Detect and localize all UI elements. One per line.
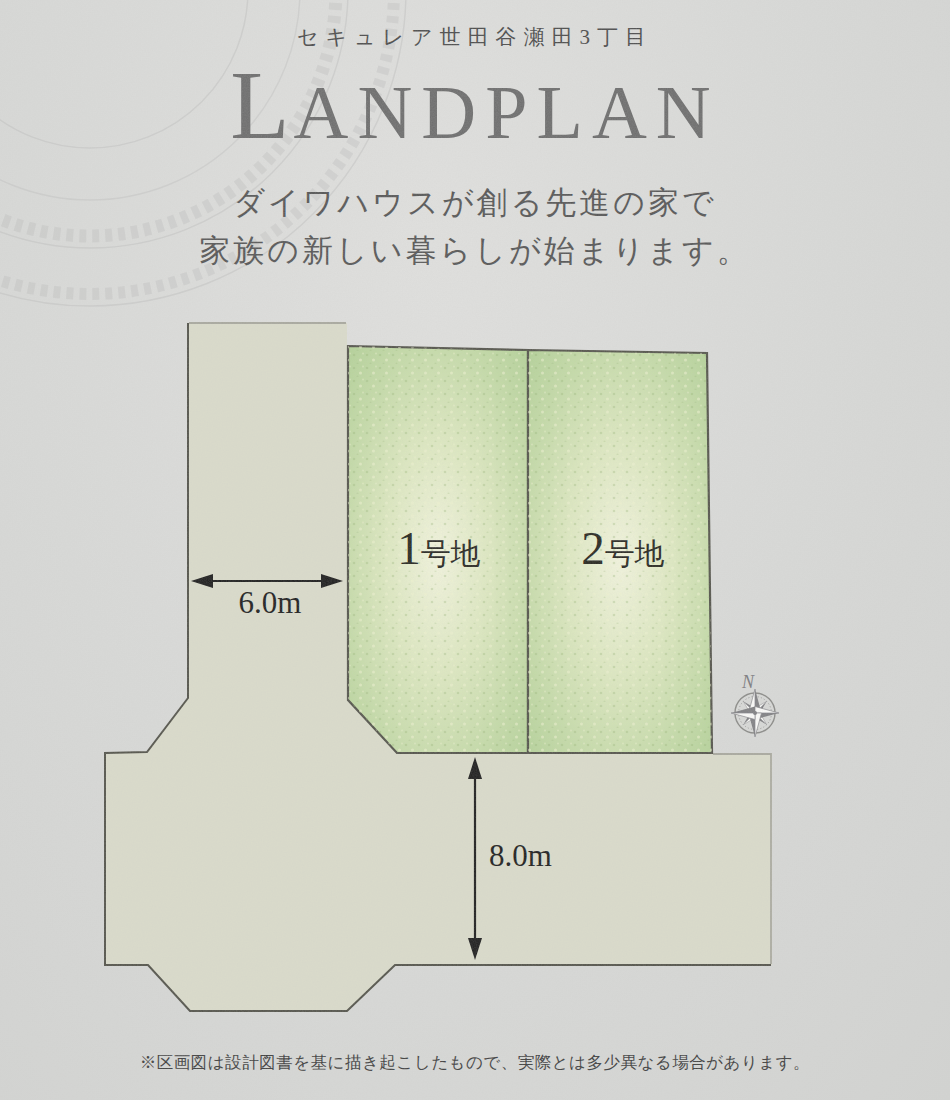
compass-rose-icon: [731, 689, 779, 737]
compass-north-label: N: [741, 672, 755, 692]
dimension-6m-label: 6.0m: [239, 585, 302, 620]
page-title: LANDPLAN: [0, 55, 950, 157]
landplan-poster: 1号地 2号地 6.0m 8.0m N: [0, 0, 950, 1100]
tagline-line-2: 家族の新しい暮らしが始まります。: [199, 233, 750, 268]
header: セキュレア世田谷瀬田3丁目 LANDPLAN ダイワハウスが創る先進の家で家族の…: [0, 0, 950, 275]
title-rest: ANDPLAN: [294, 70, 720, 154]
project-name: セキュレア世田谷瀬田3丁目: [0, 23, 950, 51]
disclaimer-note: ※区画図は設計図書を基に描き起こしたもので、実際とは多少異なる場合があります。: [0, 1052, 950, 1074]
tagline: ダイワハウスが創る先進の家で家族の新しい暮らしが始まります。: [0, 179, 950, 275]
dimension-8m-label: 8.0m: [489, 838, 552, 873]
tagline-line-1: ダイワハウスが創る先進の家で: [233, 185, 716, 220]
title-initial-letter: L: [230, 52, 293, 159]
